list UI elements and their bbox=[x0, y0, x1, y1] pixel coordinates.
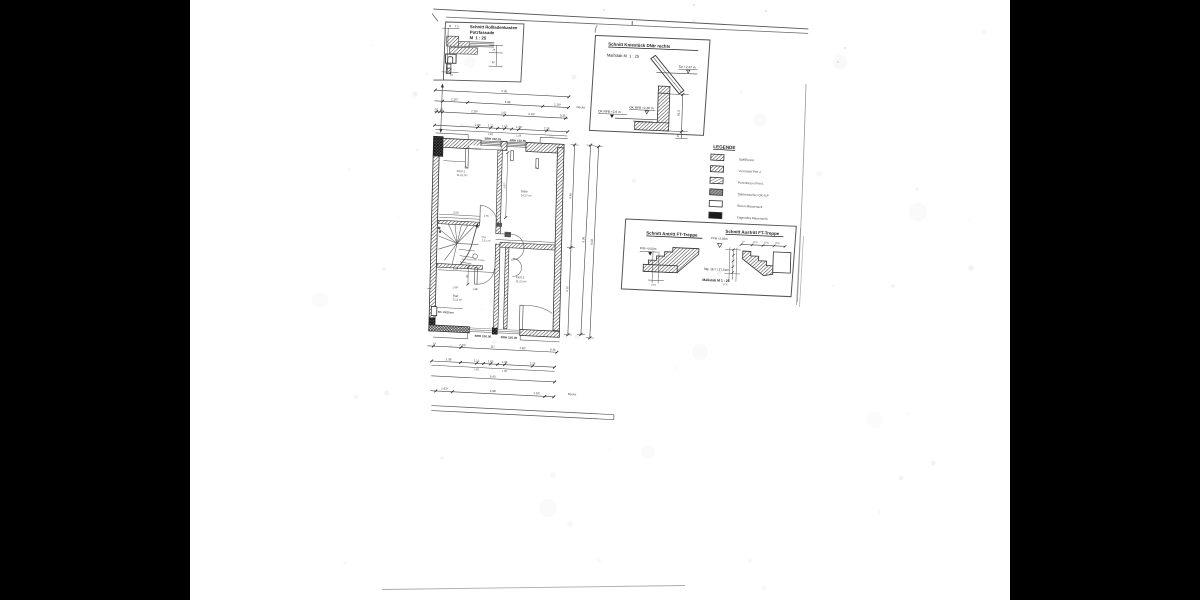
svg-text:4.88: 4.88 bbox=[490, 389, 496, 393]
svg-text:BRH 100.00: BRH 100.00 bbox=[501, 335, 518, 340]
svg-text:1.0⁵: 1.0⁵ bbox=[501, 111, 507, 115]
svg-text:BRH 100.00: BRH 100.00 bbox=[475, 334, 492, 339]
svg-text:2.56: 2.56 bbox=[453, 210, 459, 214]
svg-text:Spitßbeton: Spitßbeton bbox=[739, 157, 755, 162]
svg-text:5,14 m²: 5,14 m² bbox=[453, 297, 463, 301]
svg-text:27.5: 27.5 bbox=[764, 242, 769, 244]
svg-text:1.00¹: 1.00¹ bbox=[452, 286, 458, 289]
svg-text:2.10⁵: 2.10⁵ bbox=[528, 112, 536, 116]
svg-text:2.97⁵: 2.97⁵ bbox=[502, 182, 506, 188]
svg-text:1.38⁵: 1.38⁵ bbox=[472, 287, 478, 291]
svg-text:5.43: 5.43 bbox=[490, 374, 496, 378]
svg-text:1.38: 1.38 bbox=[502, 360, 508, 364]
svg-text:61.5: 61.5 bbox=[677, 110, 681, 116]
svg-text:4.88: 4.88 bbox=[505, 100, 511, 104]
svg-text:2.26⁵: 2.26⁵ bbox=[471, 109, 479, 113]
svg-text:2.14: 2.14 bbox=[453, 266, 459, 270]
svg-text:BD. 25/15cm: BD. 25/15cm bbox=[438, 310, 455, 315]
svg-text:2.26: 2.26 bbox=[530, 361, 536, 365]
svg-text:27.5: 27.5 bbox=[651, 284, 656, 287]
svg-text:1.28: 1.28 bbox=[516, 134, 522, 137]
svg-text:2.00: 2.00 bbox=[475, 123, 481, 127]
svg-text:BRH 102.50: BRH 102.50 bbox=[510, 138, 527, 143]
svg-text:11,22 m²: 11,22 m² bbox=[456, 173, 467, 178]
svg-text:0.35: 0.35 bbox=[550, 348, 556, 352]
svg-text:2.26: 2.26 bbox=[544, 126, 550, 130]
svg-text:1.10⁵: 1.10⁵ bbox=[554, 102, 562, 106]
svg-text:2,31 m²: 2,31 m² bbox=[482, 238, 491, 242]
svg-text:27.5: 27.5 bbox=[753, 242, 758, 244]
svg-text:1.63: 1.63 bbox=[474, 368, 480, 371]
svg-text:0.35: 0.35 bbox=[560, 114, 566, 118]
svg-text:11,23 m²: 11,23 m² bbox=[516, 279, 527, 284]
svg-text:1.76: 1.76 bbox=[484, 215, 490, 218]
svg-text:1.28: 1.28 bbox=[502, 370, 508, 373]
svg-text:14,17 m²: 14,17 m² bbox=[521, 193, 532, 198]
svg-text:27.5: 27.5 bbox=[775, 243, 780, 245]
svg-text:1.92⁵: 1.92⁵ bbox=[519, 346, 527, 350]
svg-text:Decke: Decke bbox=[568, 392, 577, 396]
svg-text:1.63⁵: 1.63⁵ bbox=[441, 386, 449, 390]
svg-text:FFB +2,36m: FFB +2,36m bbox=[711, 236, 728, 241]
svg-text:2.26⁵: 2.26⁵ bbox=[451, 97, 459, 101]
svg-text:10: 10 bbox=[435, 107, 439, 111]
svg-text:1.38: 1.38 bbox=[446, 357, 452, 361]
svg-text:Decke: Decke bbox=[576, 105, 585, 109]
svg-text:4.12: 4.12 bbox=[565, 286, 569, 292]
svg-text:1.12: 1.12 bbox=[488, 123, 494, 127]
svg-text:2.26⁵: 2.26⁵ bbox=[459, 343, 467, 347]
svg-text:5.35: 5.35 bbox=[501, 89, 507, 93]
svg-text:M: M bbox=[449, 24, 451, 28]
svg-text:4.48: 4.48 bbox=[568, 193, 572, 199]
svg-text:FFB +0,50m: FFB +0,50m bbox=[640, 246, 657, 251]
svg-text:1.63: 1.63 bbox=[488, 133, 494, 136]
svg-text:M 1 : 25: M 1 : 25 bbox=[470, 35, 487, 40]
svg-text:1.05: 1.05 bbox=[488, 359, 494, 363]
svg-text:1.12: 1.12 bbox=[474, 359, 480, 363]
svg-text:9.36: 9.36 bbox=[581, 236, 585, 242]
svg-text:1.5: 1.5 bbox=[455, 24, 459, 28]
svg-text:Tor +2,47 m: Tor +2,47 m bbox=[679, 65, 696, 70]
svg-text:1.38: 1.38 bbox=[516, 125, 522, 129]
svg-text:1.05: 1.05 bbox=[502, 124, 508, 128]
svg-text:1.10⁵: 1.10⁵ bbox=[533, 391, 541, 395]
svg-text:BRH 102.26: BRH 102.26 bbox=[485, 137, 502, 142]
svg-text:17.5: 17.5 bbox=[723, 283, 728, 286]
